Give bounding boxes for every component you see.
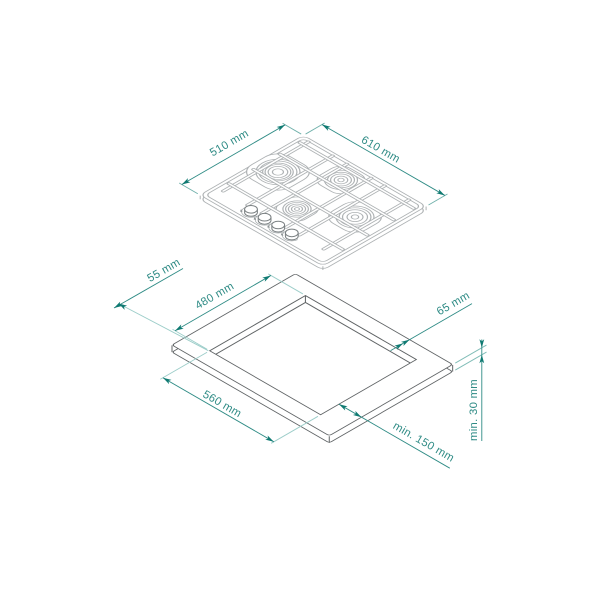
svg-text:min. 30 mm: min. 30 mm — [468, 379, 480, 441]
